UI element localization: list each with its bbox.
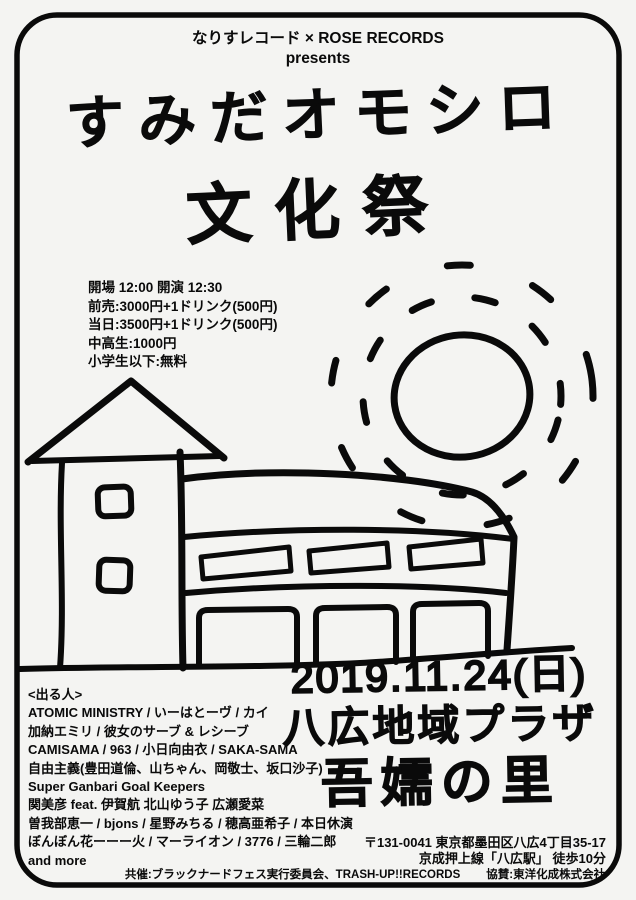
door-price: 当日:3500円+1ドリンク(500円) bbox=[88, 316, 277, 335]
sun-icon bbox=[312, 246, 612, 546]
co-host-credit: 共催:ブラックナードフェス実行委員会、TRASH-UP!!RECORDS bbox=[125, 869, 460, 881]
lineup-line: 関美彦 feat. 伊賀航 北山ゆう子 広瀬愛菜 bbox=[28, 796, 353, 814]
venue-route: 京成押上線「八広駅」 徒歩10分 bbox=[364, 851, 606, 867]
tower-building-illustration bbox=[28, 381, 224, 668]
sponsor-credit: 協賛:東洋化成株式会社 bbox=[486, 869, 605, 881]
event-title: すみだオモシロ 文化祭 bbox=[0, 64, 636, 258]
lineup-line: 自由主義(豊田道倫、山ちゃん、岡敬士、坂口沙子) bbox=[28, 760, 353, 778]
doors-open-time: 開場 12:00 開演 12:30 bbox=[88, 279, 277, 298]
child-price: 小学生以下:無料 bbox=[88, 353, 277, 372]
presenter-names: なりすレコード × ROSE RECORDS bbox=[0, 29, 636, 49]
student-price: 中高生:1000円 bbox=[88, 335, 277, 354]
lineup-heading: <出る人> bbox=[28, 686, 353, 704]
lineup-line: ATOMIC MINISTRY / いーはとーヴ / カイ bbox=[28, 704, 353, 722]
lineup-line: CAMISAMA / 963 / 小日向由衣 / SAKA-SAMA bbox=[28, 741, 353, 759]
poster: なりすレコード × ROSE RECORDS presents すみだオモシロ … bbox=[0, 0, 636, 900]
venue-address: 〒131-0041 東京都墨田区八広4丁目35-17 bbox=[364, 835, 606, 851]
lineup-line: ぼんぼん花ーーー火 / マーライオン / 3776 / 三輪二郎 bbox=[28, 833, 353, 851]
event-info: 開場 12:00 開演 12:30 前売:3000円+1ドリンク(500円) 当… bbox=[88, 279, 277, 372]
credits: 共催:ブラックナードフェス実行委員会、TRASH-UP!!RECORDS協賛:東… bbox=[120, 866, 610, 882]
access-info: 〒131-0041 東京都墨田区八広4丁目35-17 京成押上線「八広駅」 徒歩… bbox=[364, 835, 606, 867]
lineup-line: 曽我部恵一 / bjons / 星野みちる / 穂高亜希子 / 本日休演 bbox=[28, 815, 353, 833]
advance-price: 前売:3000円+1ドリンク(500円) bbox=[88, 298, 277, 317]
lineup-line: Super Ganbari Goal Keepers bbox=[28, 778, 353, 796]
lineup-list: <出る人> ATOMIC MINISTRY / いーはとーヴ / カイ 加納エミ… bbox=[28, 686, 353, 870]
plaza-building-illustration bbox=[182, 473, 514, 665]
lineup-line: 加納エミリ / 彼女のサーブ & レシーブ bbox=[28, 723, 353, 741]
